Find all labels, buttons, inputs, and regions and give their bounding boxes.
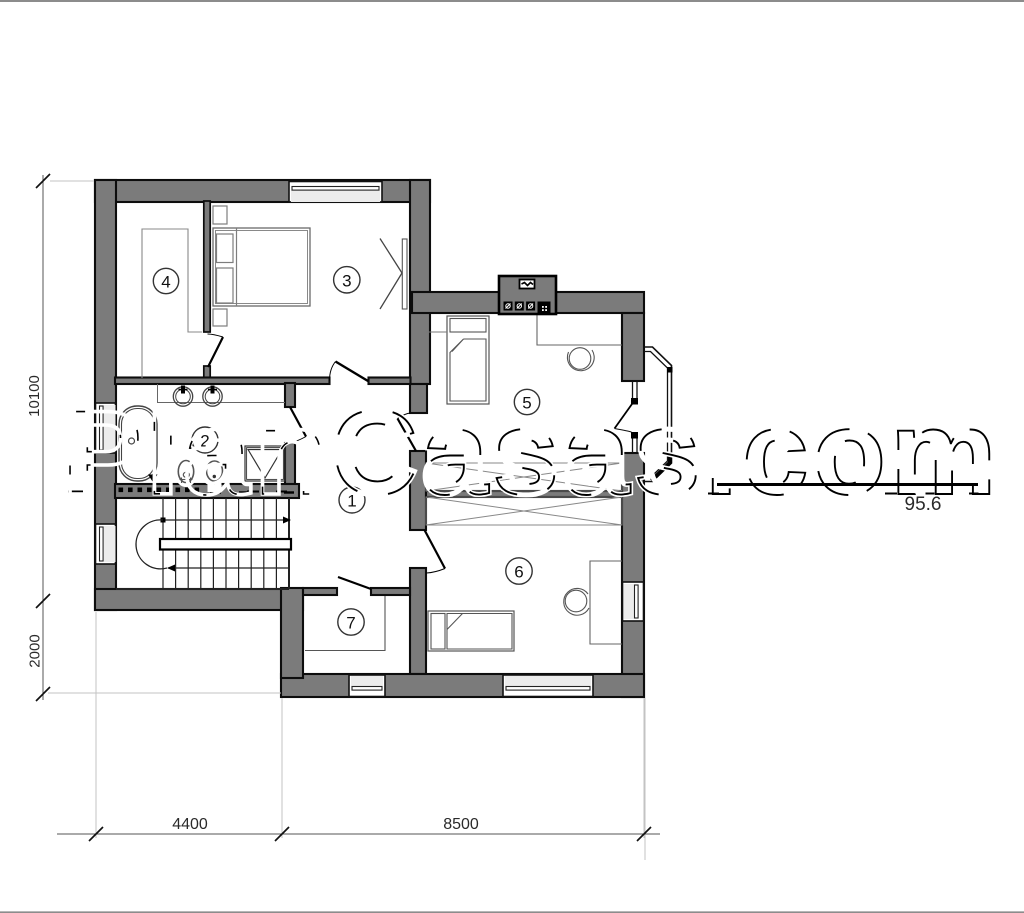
- svg-text:4400: 4400: [172, 816, 208, 833]
- svg-text:Plan: Plan: [62, 386, 331, 520]
- svg-text:95.6: 95.6: [905, 494, 942, 515]
- svg-text:7: 7: [346, 614, 355, 633]
- svg-text:4: 4: [161, 273, 170, 292]
- svg-text:8500: 8500: [443, 816, 479, 833]
- svg-text:6: 6: [514, 563, 523, 582]
- svg-text:2000: 2000: [27, 634, 44, 667]
- svg-text:com: com: [742, 386, 1001, 520]
- svg-text:10100: 10100: [26, 375, 43, 417]
- svg-text:Casas.: Casas.: [331, 386, 742, 520]
- svg-text:3: 3: [342, 271, 351, 290]
